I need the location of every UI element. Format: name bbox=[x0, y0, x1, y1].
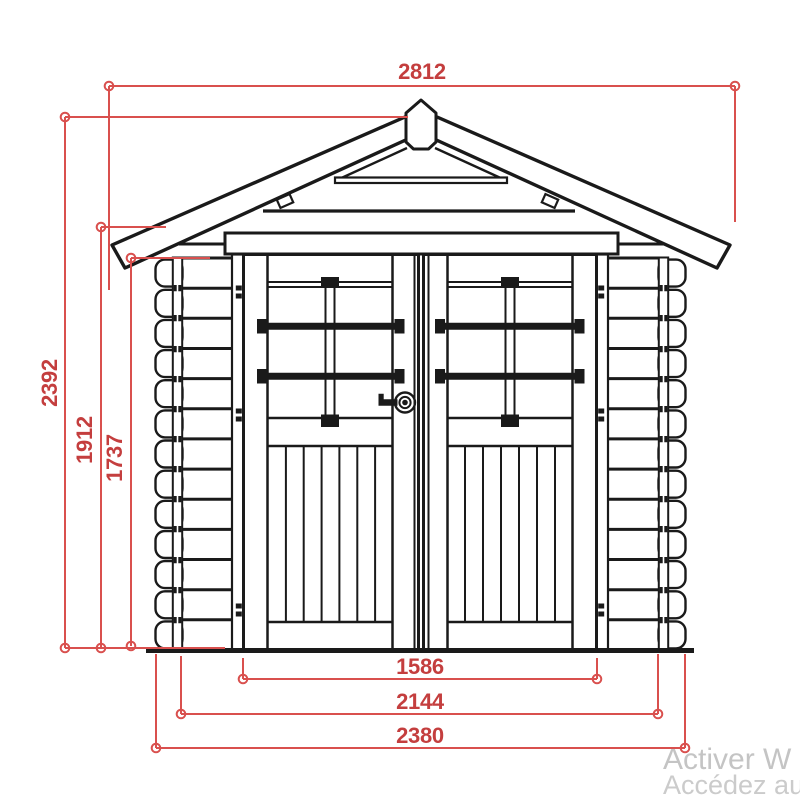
collar-beam bbox=[335, 178, 507, 184]
double-doors bbox=[244, 255, 597, 651]
dim-door-width-label: 1586 bbox=[396, 654, 444, 679]
window-mullion-right bbox=[506, 287, 515, 418]
log-joints-right bbox=[608, 258, 660, 620]
dim-overall-height-label: 2392 bbox=[37, 359, 62, 407]
door-frame-right bbox=[597, 255, 609, 651]
keyhole bbox=[402, 400, 408, 406]
dim-wall-height-label: 1737 bbox=[102, 434, 127, 482]
door-frame-left bbox=[232, 255, 244, 651]
shed-elevation-svg: Activer W Accédez au 2812 2392 1912 1737… bbox=[0, 0, 800, 800]
watermark-line2: Accédez au bbox=[663, 770, 800, 800]
ridge-finial bbox=[406, 100, 436, 149]
dim-roof-width-label: 2812 bbox=[398, 59, 446, 84]
window-mullion-left bbox=[326, 287, 335, 418]
log-joints-left bbox=[182, 258, 233, 620]
dim-eave-height-label: 1912 bbox=[72, 416, 97, 464]
header-board bbox=[225, 233, 618, 254]
dim-body-width-label: 2144 bbox=[396, 689, 445, 714]
dim-overall-width-label: 2380 bbox=[396, 723, 444, 748]
shed-technical-drawing: Activer W Accédez au 2812 2392 1912 1737… bbox=[0, 0, 800, 800]
